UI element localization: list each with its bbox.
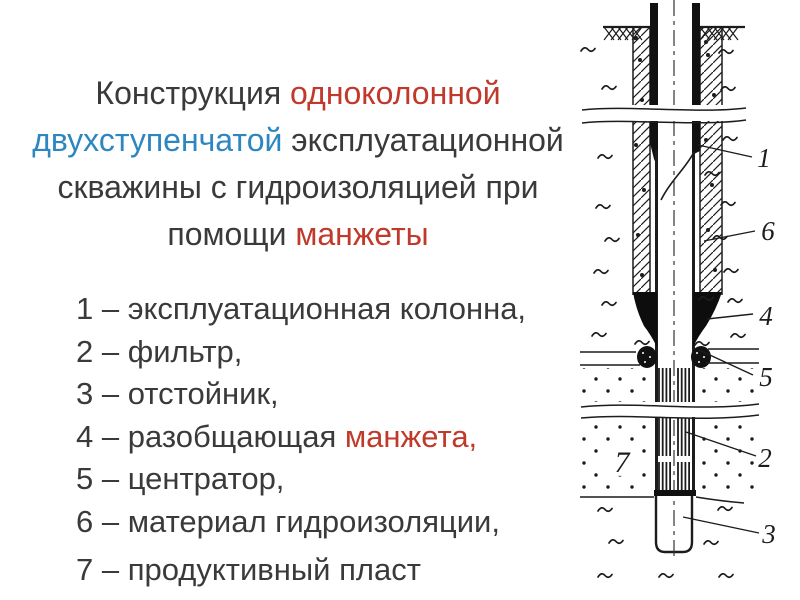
production-casing (650, 3, 700, 496)
legend-item-segment: 5 – центратор, (76, 461, 284, 496)
legend-item: 5 – центратор, (76, 458, 596, 501)
legend-item: 6 – материал гидроизоляции, (76, 501, 596, 544)
legend-item: 7 – продуктивный пласт (76, 549, 596, 592)
title-line-segment: эксплуатационной (282, 122, 563, 158)
callout-3: 3 (761, 519, 776, 549)
callout-5: 5 (759, 362, 773, 392)
slide: { "colors": { "text": "#3a3a3a", "red": … (0, 0, 800, 600)
title-line: Конструкция одноколонной (95, 70, 500, 117)
legend-item-segment: 7 – продуктивный пласт (76, 552, 421, 587)
legend-list: 1 – эксплуатационная колонна,2 – фильтр,… (76, 288, 596, 592)
stratum-boundaries (580, 349, 759, 365)
title-line: скважины с гидроизоляцией при (57, 164, 538, 211)
callout-6: 6 (761, 216, 775, 246)
callout-1: 1 (757, 143, 771, 173)
legend-item: 1 – эксплуатационная колонна, (76, 288, 596, 331)
legend-item: 3 – отстойник, (76, 373, 596, 416)
title-line-segment: Конструкция (95, 75, 290, 111)
title-line: помощи манжеты (167, 211, 428, 258)
legend-item-segment: 4 – разобщающая (76, 419, 345, 454)
callout-7: 7 (615, 446, 632, 479)
legend-item-segment: манжета, (345, 419, 477, 454)
well-diagram: 1 6 4 5 2 3 7 (578, 0, 800, 600)
layer-bottom-boundary (580, 497, 744, 503)
title-line: двухступенчатой эксплуатационной (32, 117, 564, 164)
legend-item: 4 – разобщающая манжета, (76, 416, 596, 459)
callout-2: 2 (758, 443, 772, 473)
page-title: Конструкция одноколоннойдвухступенчатой … (10, 70, 586, 258)
title-line-segment: скважины с гидроизоляцией при (57, 169, 538, 205)
filter-bottom-collar (654, 490, 696, 496)
legend-item-segment: 3 – отстойник, (76, 376, 279, 411)
legend-item-segment: 1 – эксплуатационная колонна, (76, 291, 526, 326)
legend-item: 2 – фильтр, (76, 331, 596, 374)
legend-item-segment: 6 – материал гидроизоляции, (76, 504, 500, 539)
title-line-segment: манжеты (295, 216, 428, 252)
waterproofing-hatch (633, 27, 722, 295)
callout-4: 4 (759, 301, 773, 331)
title-line-segment: двухступенчатой (32, 122, 282, 158)
title-line-segment: одноколонной (290, 75, 501, 111)
legend-item-segment: 2 – фильтр, (76, 334, 242, 369)
title-line-segment: помощи (167, 216, 295, 252)
